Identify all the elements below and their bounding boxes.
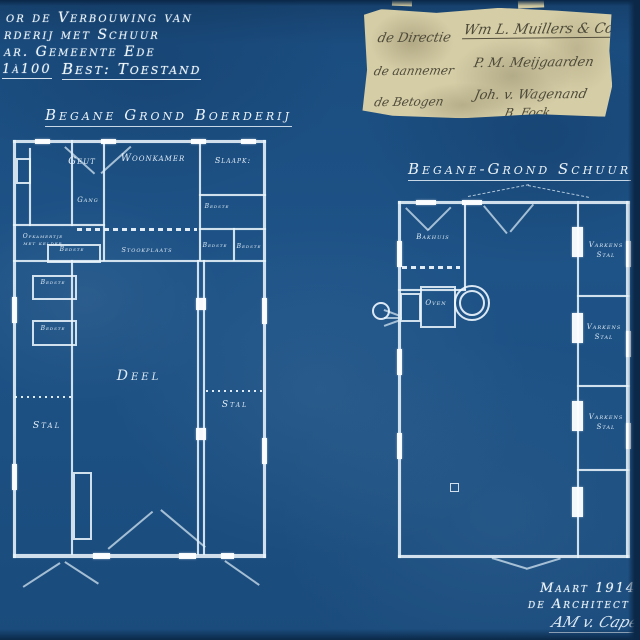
floorplan-farmhouse: Geut Gang Woonkamer Slaapk: Bedste Bedst…	[13, 140, 266, 558]
window-marker	[12, 464, 17, 490]
plan2-title: Begane-Grond Schuur	[408, 160, 631, 181]
door-marker	[179, 553, 196, 559]
stamp-signature-2: P. M. Meijgaarden	[472, 55, 595, 71]
room-label-opkamertje: Opkamertje	[15, 233, 71, 240]
wall-segment	[577, 385, 630, 387]
oven-circle-inner	[459, 290, 485, 316]
dashed-hatch-line	[402, 266, 460, 269]
oven-box	[420, 286, 456, 328]
room-label-bakhuis: Bakhuis	[404, 233, 462, 241]
door-swing-line	[427, 207, 451, 231]
approval-stamp-paper: de Directie Wm L. Muillers & Co de aanne…	[361, 7, 612, 120]
window-marker	[397, 241, 402, 267]
stamp-role-2: de aannemer	[373, 63, 456, 78]
window-marker	[12, 297, 17, 323]
door-swing-line	[509, 204, 533, 233]
room-label-woonkamer: Woonkamer	[109, 153, 197, 164]
scale-label: 1à100	[2, 62, 52, 79]
room-label-varkens-stal: Varkens	[582, 323, 626, 331]
title-line-3: ar. Gemeente Ede	[4, 44, 156, 60]
window-marker	[35, 139, 50, 144]
room-label-deel: Deel	[103, 368, 175, 384]
trough-box	[73, 472, 92, 540]
wall-segment	[398, 555, 630, 558]
room-label-gang: Gang	[75, 196, 101, 204]
floorplan-barn: Bakhuis Oven Varkens Stal Varkens Stal V…	[398, 201, 630, 558]
dashed-hatch-line	[77, 228, 197, 231]
stamp-role-3: de Betogen	[373, 94, 445, 109]
door-marker	[93, 553, 110, 559]
well-circle	[372, 302, 390, 320]
door-swing-line	[65, 561, 99, 584]
room-label-stal: Stal	[209, 400, 261, 410]
room-label-bedste: Bedste	[199, 242, 231, 249]
post-marker	[450, 483, 459, 492]
door-swing-line	[225, 560, 260, 585]
room-label-bedste: Bedste	[34, 279, 72, 286]
plan1-title: Begane Grond Boerderij	[45, 106, 292, 127]
wall-segment	[577, 469, 630, 471]
roof-dash-line	[468, 184, 529, 197]
window-marker	[416, 200, 436, 205]
wall-segment	[13, 140, 266, 143]
room-label-bedste: Bedste	[233, 243, 265, 250]
window-marker	[397, 349, 402, 375]
room-label-stookplaats: Stookplaats	[111, 246, 183, 254]
wall-segment	[13, 224, 105, 226]
room-label-varkens-stal: Varkens	[584, 413, 628, 421]
entrance-mark	[492, 557, 527, 569]
stamp-signature-1: Wm L. Muillers & Co	[462, 21, 615, 40]
wall-segment	[13, 140, 16, 558]
door-swing-line	[483, 205, 507, 234]
annex-box	[400, 293, 421, 322]
dotted-trough-line	[15, 396, 71, 398]
architect-label: de Architect	[528, 597, 630, 612]
room-label-bedste: Bedste	[201, 203, 233, 210]
title-line-2: rderij met Schuur	[4, 27, 160, 43]
room-label-varkens-stal-2: Stal	[584, 251, 628, 259]
room-label-geut: Geut	[51, 156, 113, 167]
title-line-4: Best: Toestand	[62, 60, 201, 80]
room-label-varkens-stal: Varkens	[584, 241, 628, 249]
wall-segment	[199, 194, 266, 196]
door-swing-line	[161, 509, 206, 547]
door-swing-line	[405, 207, 429, 231]
door-swing-line	[108, 511, 153, 549]
edge-shadow	[628, 0, 640, 640]
door-swing-line	[23, 562, 61, 587]
room-label-bedste: Bedste	[49, 246, 95, 253]
room-label-bedste: Bedste	[34, 325, 72, 332]
window-marker	[241, 139, 256, 144]
closet-box	[16, 158, 31, 184]
door-marker	[196, 428, 206, 440]
room-label-oven: Oven	[420, 299, 452, 307]
edge-shadow	[0, 0, 640, 6]
stamp-signature-3: Joh. v. Wagenand	[473, 87, 589, 103]
entrance-mark	[526, 558, 561, 570]
door-marker	[572, 401, 583, 431]
window-marker	[191, 139, 206, 144]
room-label-stal: Stal	[21, 420, 73, 431]
room-label-varkens-stal-2: Stal	[582, 333, 626, 341]
wall-segment	[464, 204, 466, 290]
dotted-trough-line	[206, 390, 264, 392]
window-marker	[262, 298, 267, 324]
roof-dash-line	[528, 185, 589, 198]
date-label: Maart 1914	[540, 581, 636, 596]
room-label-slaapk: Slaapk:	[203, 156, 263, 165]
window-marker	[462, 200, 482, 205]
door-marker	[572, 487, 583, 517]
edge-shadow	[0, 629, 640, 640]
title-line-1: or de Verbouwing van	[6, 10, 193, 26]
stamp-role-1: de Directie	[376, 30, 452, 46]
wall-segment	[577, 295, 630, 297]
door-marker	[572, 227, 583, 257]
wall-segment	[263, 140, 266, 558]
room-label-varkens-stal-2: Stal	[584, 423, 628, 431]
stamp-signature-4: B. Fock	[503, 105, 551, 121]
door-marker	[196, 298, 206, 310]
window-marker	[397, 433, 402, 459]
door-marker	[221, 553, 234, 559]
window-marker	[262, 438, 267, 464]
window-marker	[101, 139, 116, 144]
